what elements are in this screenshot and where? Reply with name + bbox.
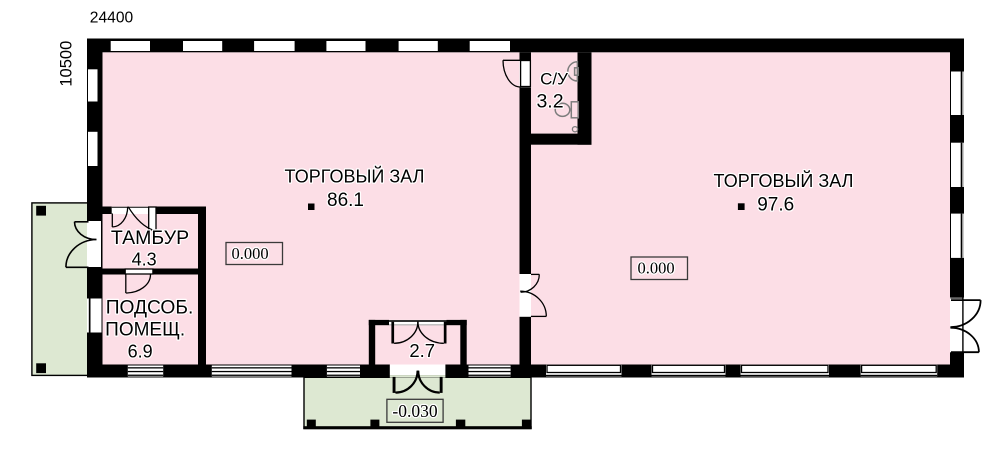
svg-text:ТОРГОВЫЙ ЗАЛ: ТОРГОВЫЙ ЗАЛ bbox=[714, 170, 854, 191]
svg-text:0.000: 0.000 bbox=[637, 259, 674, 278]
svg-text:97.6: 97.6 bbox=[757, 195, 794, 216]
svg-text:86.1: 86.1 bbox=[327, 190, 364, 211]
svg-text:ТАМБУР: ТАМБУР bbox=[111, 227, 189, 249]
svg-text:10500: 10500 bbox=[57, 41, 75, 87]
svg-text:24400: 24400 bbox=[90, 10, 134, 27]
svg-text:С/У: С/У bbox=[540, 70, 568, 89]
svg-text:-0.030: -0.030 bbox=[392, 401, 437, 421]
svg-text:ПОДСОБ.: ПОДСОБ. bbox=[106, 298, 194, 319]
svg-text:ПОМЕЩ.: ПОМЕЩ. bbox=[105, 320, 185, 341]
svg-text:0.000: 0.000 bbox=[231, 244, 268, 263]
svg-text:3.2: 3.2 bbox=[536, 91, 563, 113]
svg-text:4.3: 4.3 bbox=[132, 250, 157, 270]
svg-text:ТОРГОВЫЙ ЗАЛ: ТОРГОВЫЙ ЗАЛ bbox=[285, 166, 425, 187]
svg-text:6.9: 6.9 bbox=[128, 341, 153, 361]
svg-text:2.7: 2.7 bbox=[409, 340, 435, 361]
